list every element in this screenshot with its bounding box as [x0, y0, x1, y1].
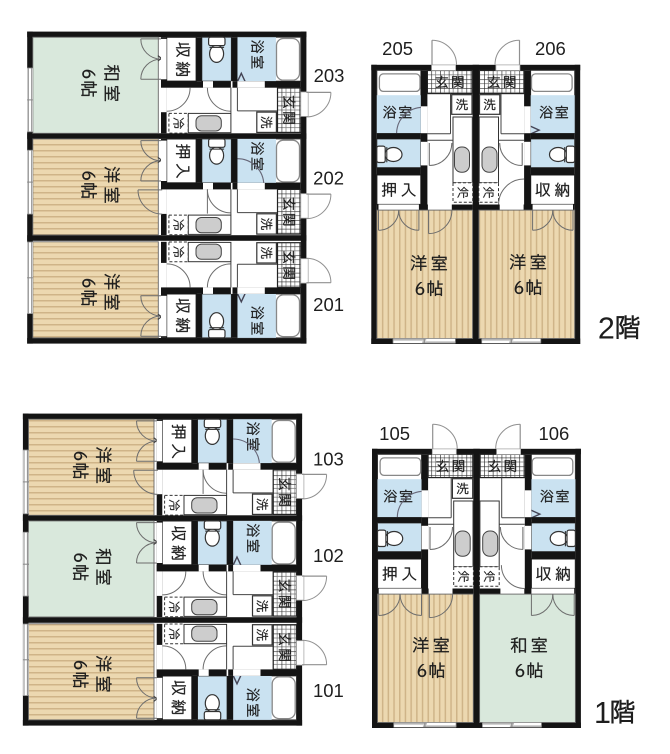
svg-text:201: 201 — [313, 294, 344, 315]
svg-text:105: 105 — [379, 423, 410, 444]
svg-text:202: 202 — [313, 167, 344, 188]
svg-text:101: 101 — [313, 680, 344, 701]
svg-text:203: 203 — [314, 65, 345, 86]
svg-text:206: 206 — [535, 38, 566, 59]
svg-text:103: 103 — [313, 449, 344, 470]
svg-text:106: 106 — [538, 423, 569, 444]
svg-text:2: 2 — [598, 312, 615, 346]
svg-text:1: 1 — [594, 696, 611, 730]
svg-text:205: 205 — [382, 38, 413, 59]
svg-text:102: 102 — [313, 545, 344, 566]
